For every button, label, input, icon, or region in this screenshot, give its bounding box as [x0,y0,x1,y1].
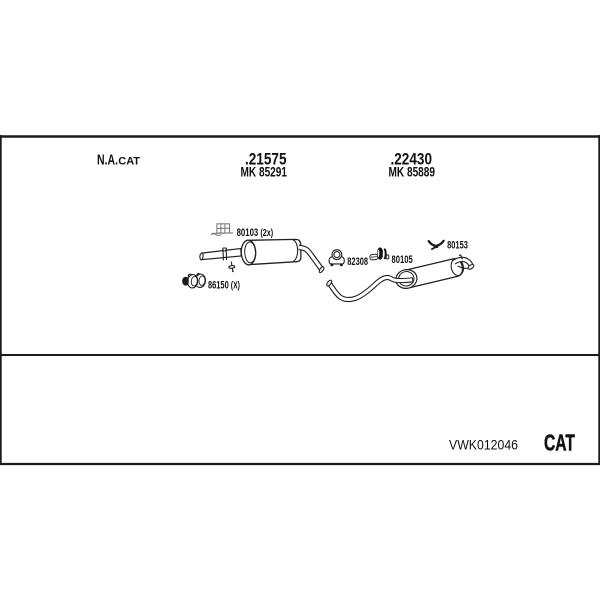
svg-text:80105: 80105 [392,254,413,266]
svg-text:VWK012046: VWK012046 [449,438,518,453]
svg-text:CAT: CAT [544,430,575,456]
svg-text:CAT: CAT [118,155,140,167]
svg-text:MK 85291: MK 85291 [241,165,288,180]
svg-text:80103 (2x): 80103 (2x) [237,227,274,239]
svg-text:N.A.: N.A. [97,152,118,168]
svg-text:80153: 80153 [447,240,468,252]
svg-text:86150 (X): 86150 (X) [208,280,240,292]
svg-text:MK 85889: MK 85889 [389,165,436,180]
svg-text:82308: 82308 [347,256,368,268]
